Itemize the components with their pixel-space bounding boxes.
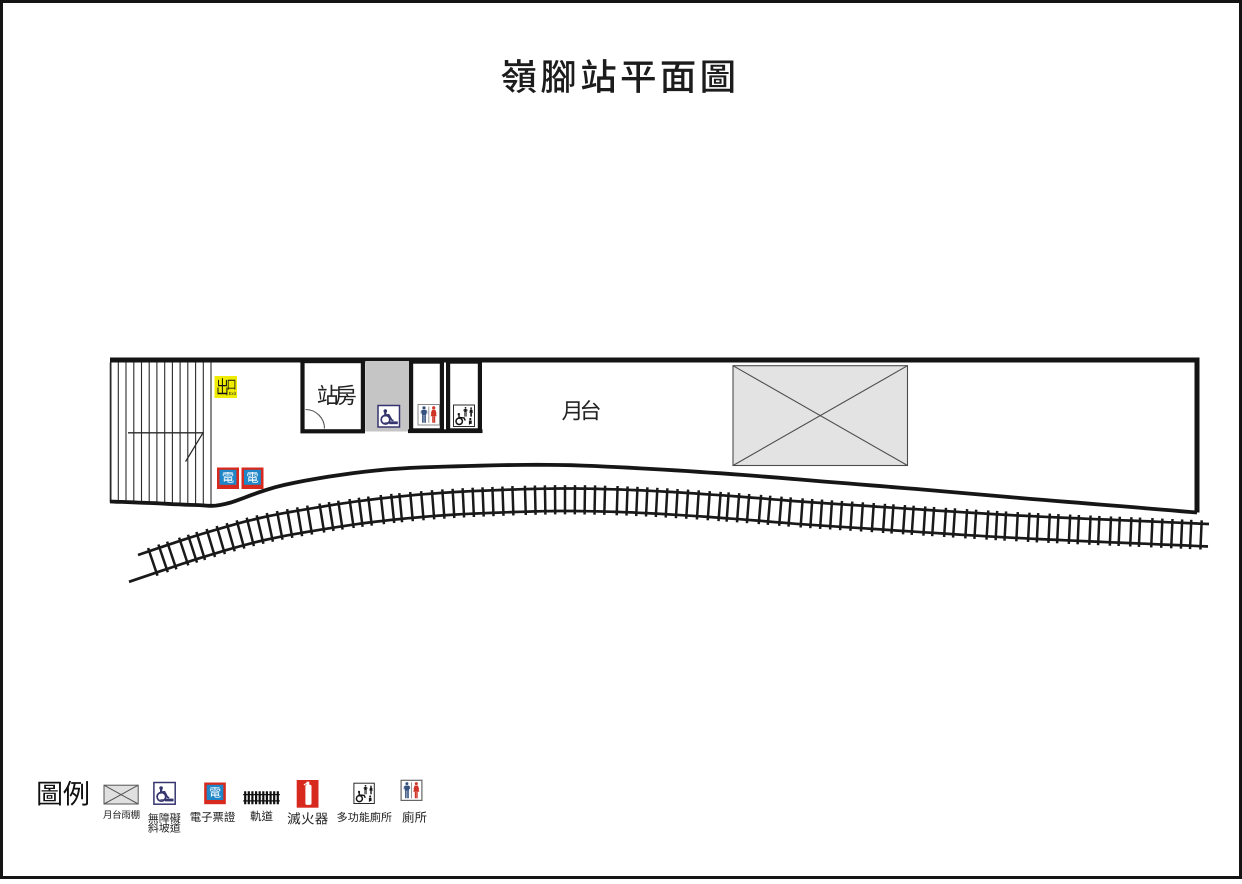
svg-text:Exit: Exit — [229, 391, 237, 396]
